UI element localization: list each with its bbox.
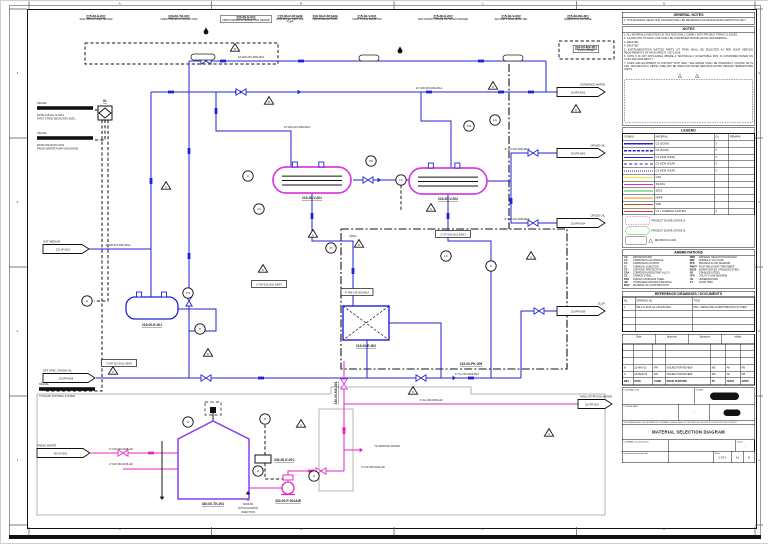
boxed-note-text: 2"-DR-215-0011 (NNF): [256, 283, 282, 286]
signal-label: SIGNAL: [37, 131, 47, 135]
equipment-tag: XL: [103, 99, 107, 103]
hold-triangle-number: B: [268, 100, 270, 104]
line-number-label: 2"-FW-330-0015-HD: [109, 462, 133, 466]
instrument-tag: LI: [257, 469, 260, 473]
oval-tag: [191, 54, 215, 60]
pipe-line: [448, 194, 491, 378]
line-number-label: 12"-SW-330-0002-B1A: [416, 86, 443, 90]
line-number-label: TO SERVICE WATER: [374, 444, 400, 448]
pipe-line: [216, 92, 291, 167]
instrument-tag: TG: [186, 291, 191, 295]
hold-triangle-number: B: [234, 47, 236, 51]
line-number-label: SODIUM: [243, 502, 253, 506]
line-number-label: 8"-CO-215-0004-B1A: [505, 147, 530, 151]
line-number-label: (NNF): [349, 234, 356, 238]
valve-icon: [528, 220, 538, 226]
line-number-label: 10"-RW-215-0003-B1A: [284, 125, 311, 129]
signal-desc: FIRST STAGE DESALTER LEVEL: [37, 118, 76, 121]
vessel-nozzle: [292, 162, 297, 167]
storage-tank: [178, 421, 249, 499]
drop-icon-tip: [398, 46, 401, 49]
signal-flag: [37, 136, 93, 140]
line-number-label: 6"-SL-215-0006-B1A: [455, 372, 479, 376]
drop-icon-tip: [204, 27, 207, 30]
line-number-label: 8"-CO-215-0005-B1A: [505, 217, 530, 221]
instrument-tag: LI: [247, 174, 250, 178]
connector-service-label: CRUDE OIL: [590, 214, 605, 218]
instrument-tag: TI: [199, 327, 202, 331]
line-number-label: INJECTION: [241, 510, 255, 514]
pipe-line: [521, 311, 557, 378]
equipment-tag: 330-00-P-001A/B: [275, 499, 301, 503]
connector-service-label: FRESH WATER: [37, 444, 56, 448]
shell-tube-exchanger: [126, 297, 178, 319]
signal-label: SIGNAL: [37, 101, 47, 105]
vessel-nozzle: [455, 163, 460, 168]
equipment-tag: 215-00-V-001: [302, 196, 322, 200]
hold-triangle-number: B: [207, 352, 209, 356]
pipe-line: [421, 92, 451, 168]
hold-triangle-number: A: [312, 233, 314, 237]
valve-icon: [416, 375, 426, 381]
boxed-note-text: 3"-DR-215-0013 (NNF): [106, 362, 132, 365]
pipe-line: [487, 153, 557, 181]
connector-ref-label: 215-PR-0009: [571, 311, 586, 314]
oval-tag: [503, 55, 523, 61]
exchanger-nozzle: [137, 292, 142, 297]
tank-heater: [255, 455, 271, 463]
connector-ref-label: 215-PR-0002: [571, 92, 586, 95]
hold-triangle-number: A: [530, 255, 532, 259]
instrument-tag: PI: [330, 246, 333, 250]
boxed-note-text: 2"-VT-215-0012 (NNF): [440, 233, 465, 236]
valve-icon: [201, 375, 211, 381]
signal-desc: TO PLANT CONTROL SYSTEM: [39, 395, 75, 398]
desalter-vessel: [409, 168, 487, 194]
tank-vent-icon: [210, 407, 216, 413]
hold-triangle-number: B: [358, 243, 360, 247]
instrument-tag: LI: [264, 417, 267, 421]
connector-service-label: OFF SPEC CRUDE OIL: [43, 369, 72, 373]
pipe-line: [511, 181, 557, 223]
exchanger-nozzle: [162, 292, 167, 297]
equipment-tag: 215-00-V-002: [438, 197, 458, 201]
connector-ref-label: 215-UF-0021: [56, 249, 71, 252]
pump-icon: [282, 482, 294, 494]
instrument-tag: PG: [467, 124, 472, 128]
connector-service-label: SLOP: [598, 302, 605, 306]
flow-arrow-icon: [298, 90, 301, 95]
desalter-vessel: [273, 167, 351, 193]
connector-ref-label: 215-PR-0011: [585, 404, 600, 407]
instrument-tag: LI: [490, 264, 493, 268]
equipment-tag: 330-00-E-001: [274, 458, 294, 462]
line-number-label: HYPOCHLORITE: [238, 506, 259, 510]
flow-arrow-icon: [160, 497, 165, 500]
pipe-line: [46, 120, 102, 391]
line-number-label: 3"-FW-330-0010-HD: [361, 465, 385, 469]
line-number-label: 4"-HM-215-0007-B1A: [106, 243, 131, 247]
equipment-tag: 330-00-MX-001: [334, 381, 338, 404]
pump-motor-icon: [283, 475, 293, 480]
valve-icon: [341, 379, 347, 389]
vessel-nozzle: [428, 163, 433, 168]
drawing-sheet: SCREENED WATER215-PR-0002CRUDE OIL215-PR…: [0, 0, 768, 544]
valve-icon: [236, 89, 246, 95]
instrument-tag: LI: [187, 420, 190, 424]
connector-ref-label: 215-PR-0008: [59, 378, 74, 381]
line-number-label: 4"-SA-330-0009-HD: [419, 398, 442, 402]
signal-label: SIGNAL: [39, 382, 49, 386]
connector-ref-label: 330-UF-0031: [53, 453, 68, 456]
pid-diagram: SCREENED WATER215-PR-0002CRUDE OIL215-PR…: [1, 1, 768, 543]
hold-triangle-number: A: [300, 423, 302, 427]
equipment-tag: 215-00-PK-005: [460, 362, 483, 366]
instrument-tag: PG: [369, 159, 374, 163]
equipment-tag: 215-00-E-001: [142, 323, 162, 327]
hold-triangle-number: B: [492, 85, 494, 89]
flow-arrow-icon: [453, 376, 456, 381]
connector-service-label: SAND ATTRITION WATER: [580, 395, 612, 399]
flow-arrow-icon: [378, 178, 381, 183]
boxed-note-text: 4"-RW-215-0014-B1A: [345, 291, 369, 294]
connector-ref-label: 215-PR-0003: [571, 153, 586, 156]
instrument-tag: LI: [313, 474, 316, 478]
hold-triangle-number: B: [412, 390, 414, 394]
connector-service-label: CRUDE OIL: [590, 144, 605, 148]
valve-icon: [534, 308, 544, 314]
instrument-tag: LG: [493, 118, 498, 122]
hold-triangle-number: A: [165, 185, 167, 189]
signal-desc: FRESH WATER PUMP DISCHARGE: [37, 148, 79, 151]
connector-service-label: SCREENED WATER: [580, 83, 605, 87]
hold-triangle-number: A: [430, 207, 432, 211]
oval-tag: [359, 55, 379, 61]
instrument-tag: LG: [257, 207, 262, 211]
instrument-tag: LI: [86, 299, 89, 303]
flow-arrow-icon: [342, 426, 347, 429]
line-number-label: 6"-FW-330-0008-HD: [109, 447, 133, 451]
line-number-label: 10"-RW-215-0001-B1A: [238, 55, 265, 59]
equipment-tag: 330-00-TK-001: [202, 502, 225, 506]
pipe-line: [94, 120, 108, 301]
hold-triangle-number: B: [262, 268, 264, 272]
signal-flag: [39, 387, 95, 391]
pipe-line: [95, 120, 105, 140]
pipe-line: [389, 323, 441, 378]
hold-triangle-number: A: [112, 370, 114, 374]
valve-icon: [363, 177, 373, 183]
connector-service-label: HOT MEDIUM: [43, 240, 61, 244]
vessel-nozzle: [319, 162, 324, 167]
flow-arrow-icon: [360, 448, 363, 453]
equipment-tag: 215-00-E-002: [356, 344, 376, 348]
hold-triangle-number: B: [575, 108, 577, 112]
hold-triangle-number: A: [548, 432, 550, 436]
pipe-line: [559, 41, 614, 59]
signal-flag: [37, 106, 93, 110]
pipe-line: [37, 387, 605, 515]
valve-icon: [528, 150, 538, 156]
connector-ref-label: 215-PR-0004: [571, 223, 586, 226]
pipe-line: [265, 463, 284, 479]
pipe-line: [341, 229, 567, 369]
